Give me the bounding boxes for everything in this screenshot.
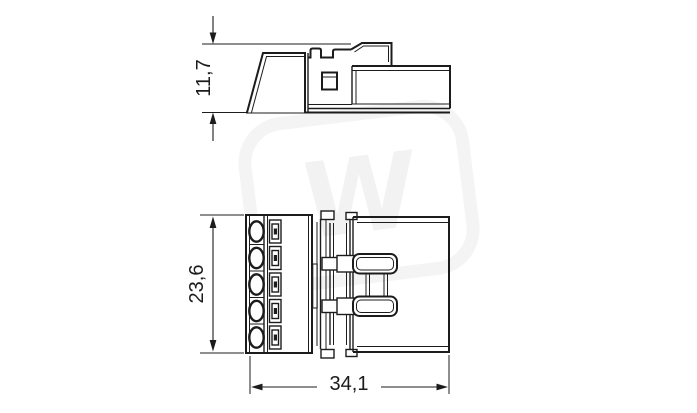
test-slot-5	[270, 326, 282, 349]
carrier-tab-bottom-left	[321, 350, 334, 359]
wire-entry-port-3	[249, 274, 263, 294]
arrow-right-icon	[437, 384, 449, 391]
side-view-strain-relief-housing	[247, 53, 305, 113]
dimension-label-top-height: 23,6	[186, 265, 208, 304]
test-slot-1	[270, 220, 282, 243]
latch-arm-lower	[322, 297, 397, 317]
arrow-up-icon	[210, 217, 217, 229]
latch-arm-upper	[322, 254, 397, 274]
side-view-locking-lever-inner	[355, 46, 389, 62]
side-view-latch-window	[322, 73, 337, 90]
connector-dimensional-drawing: 11,7	[0, 0, 697, 413]
arrow-up-icon	[210, 113, 217, 125]
test-slot-4	[270, 300, 282, 323]
wire-entry-port-4	[249, 301, 263, 321]
dimension-top-height: 23,6	[186, 215, 244, 353]
wire-entry-port-2	[249, 248, 263, 268]
top-view-plug-body	[353, 217, 449, 352]
dimension-label-top-width: 34,1	[330, 373, 369, 395]
arrow-down-icon	[210, 33, 217, 45]
wire-entry-port-1	[249, 221, 263, 241]
test-slot-3	[270, 273, 282, 296]
latch-arm-connectors	[366, 274, 388, 297]
side-view-body-top-profile	[308, 49, 351, 58]
test-slot-2	[270, 247, 282, 270]
dimension-label-side-height: 11,7	[193, 59, 215, 96]
dimension-top-width: 34,1	[250, 355, 449, 395]
side-view: 11,7	[193, 16, 450, 141]
arrow-down-icon	[210, 340, 217, 352]
top-view: 23,6	[186, 211, 449, 395]
wire-entry-port-5	[249, 327, 263, 347]
arrow-left-icon	[251, 384, 263, 391]
top-view-carrier-rails	[313, 211, 357, 358]
carrier-tab-top-left	[321, 211, 334, 220]
technical-drawing-canvas: W 11,7	[0, 0, 697, 413]
side-view-plug-outline	[352, 66, 450, 109]
